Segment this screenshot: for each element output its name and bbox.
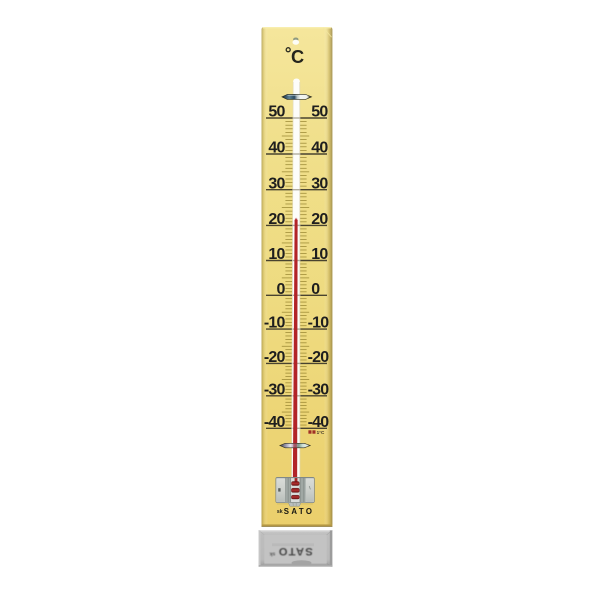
- svg-text:50: 50: [268, 104, 285, 121]
- svg-text:-20: -20: [264, 349, 286, 366]
- svg-text:30: 30: [268, 175, 285, 192]
- svg-text:40: 40: [268, 140, 285, 157]
- svg-text:0: 0: [276, 281, 285, 298]
- svg-text:C: C: [291, 47, 304, 67]
- svg-text:1°C: 1°C: [317, 430, 325, 435]
- svg-text:50: 50: [311, 104, 328, 121]
- svg-text:40: 40: [311, 140, 328, 157]
- svg-text:-30: -30: [308, 381, 330, 398]
- svg-text:10: 10: [311, 246, 328, 263]
- svg-text:-20: -20: [308, 349, 330, 366]
- svg-text:10: 10: [268, 246, 285, 263]
- svg-text:-10: -10: [264, 315, 286, 332]
- svg-text:0: 0: [311, 281, 320, 298]
- svg-text:sk: sk: [277, 509, 283, 515]
- svg-text:20: 20: [268, 211, 285, 228]
- svg-text:-40: -40: [264, 414, 286, 431]
- svg-text:sk: sk: [270, 550, 276, 556]
- svg-text:-10: -10: [308, 315, 330, 332]
- svg-text:30: 30: [311, 175, 328, 192]
- svg-text:SATO: SATO: [278, 545, 313, 557]
- svg-text:20: 20: [311, 211, 328, 228]
- svg-text:SATO: SATO: [284, 507, 315, 516]
- svg-text:-30: -30: [264, 381, 286, 398]
- svg-text:-40: -40: [308, 414, 330, 431]
